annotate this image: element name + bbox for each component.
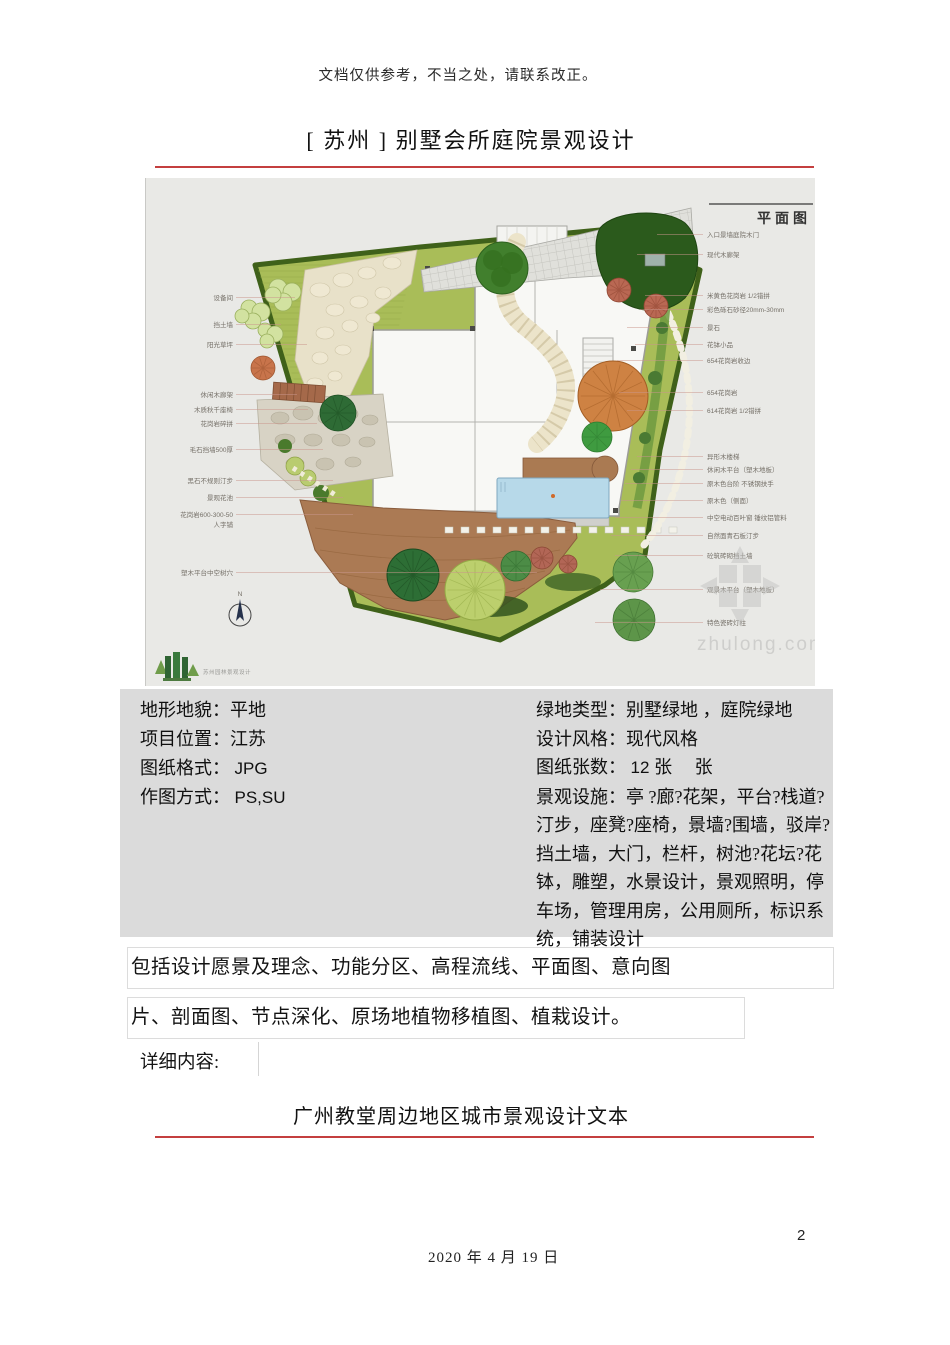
stone-paving xyxy=(257,382,393,490)
watermark-text: zhulong.com xyxy=(697,634,815,655)
info-row: 绿地类型：别墅绿地 ，庭院绿地 xyxy=(536,696,836,725)
info-row: 图纸格式： JPG xyxy=(140,754,286,783)
summary-line-1: 包括设计愿景及理念、功能分区、高程流线、平面图、意向图 xyxy=(127,947,834,989)
pergola xyxy=(273,382,326,403)
plan-title: 平面图 xyxy=(757,211,811,227)
info-row: 图纸张数： 12 张 张 xyxy=(536,753,836,783)
info-row: 设计风格：现代风格 xyxy=(536,725,836,754)
plan-annotation: 614花岗岩 1/2错拼 xyxy=(707,406,762,415)
plan-annotation: 中空电动百叶窗 锤纹铝管料 xyxy=(707,513,787,522)
site-plan-image: 设备间挡土墙阳光草坪休闲木廊架木质秋千座椅花岗岩碎拼毛石挡墙500厚黑石不规则汀… xyxy=(145,178,815,686)
info-row: 作图方式： PS,SU xyxy=(140,783,286,812)
plan-annotation: 异形木楼梯 xyxy=(707,452,740,461)
info-column-left: 地形地貌：平地 项目位置：江苏 图纸格式： JPG 作图方式： PS,SU xyxy=(140,696,286,812)
plan-annotation: 塑木平台中空树穴 xyxy=(181,568,234,577)
plan-annotation: 原木色台阶 不锈钢扶手 xyxy=(707,479,774,488)
info-row: 地形地貌：平地 xyxy=(140,696,286,725)
plan-annotation: 654花岗岩 xyxy=(707,388,738,397)
plan-annotation: 654花岗岩收边 xyxy=(707,356,751,365)
summary-line-2: 片、剖面图、节点深化、原场地植物移植图、植栽设计。 xyxy=(127,997,745,1039)
plan-annotation: 景石 xyxy=(707,324,721,332)
plan-annotation: 入口景墙庭院木门 xyxy=(707,230,759,239)
plan-annotation: 木质秋千座椅 xyxy=(194,405,234,414)
footer-date: 2020 年 4 月 19 日 xyxy=(428,1246,559,1267)
logo-text: 苏州园林景观设计 xyxy=(203,668,251,676)
plan-annotation: 人字铺 xyxy=(214,520,234,529)
project-info-box: 地形地貌：平地 项目位置：江苏 图纸格式： JPG 作图方式： PS,SU 绿地… xyxy=(120,689,833,937)
plan-annotation: 设备间 xyxy=(214,293,234,302)
plan-annotation: 景观花池 xyxy=(207,493,234,502)
plan-annotation: 米黄色花岗岩 1/2错拼 xyxy=(707,291,770,300)
plan-annotation: 毛石挡墙500厚 xyxy=(190,445,234,454)
page-number: 2 xyxy=(797,1227,805,1244)
plan-annotation: 休闲木平台（塑木地板） xyxy=(707,465,779,474)
plan-annotation: 原木色（侧面） xyxy=(707,496,753,505)
north-label: N xyxy=(238,591,243,598)
tree-canopy-lines xyxy=(502,552,530,580)
tree-canopy-lines xyxy=(389,551,437,599)
site-plan-svg: 设备间挡土墙阳光草坪休闲木廊架木质秋千座椅花岗岩碎拼毛石挡墙500厚黑石不规则汀… xyxy=(145,178,815,686)
info-row: 项目位置：江苏 xyxy=(140,725,286,754)
plan-annotation: 花岗岩碎拼 xyxy=(201,419,234,428)
disclaimer-text: 文档仅供参考，不当之处，请联系改正。 xyxy=(0,64,916,85)
tree-canopy-lines xyxy=(447,562,502,617)
plan-annotation: 彩色砾石砂径20mm-30mm xyxy=(707,305,784,314)
plan-annotation: 现代木廊架 xyxy=(707,250,740,259)
title-underline xyxy=(155,166,814,168)
title-underline xyxy=(155,1136,814,1138)
swimming-pool xyxy=(497,478,609,518)
plan-annotation: 挡土墙 xyxy=(214,320,234,329)
plan-annotation: 阳光草坪 xyxy=(207,340,234,349)
info-row-facilities: 景观设施：亭 ?廊?花架，平台?栈道?汀步，座凳?座椅，景墙?围墙，驳岸?挡土墙… xyxy=(536,783,836,954)
next-section-title: 广州教堂周边地区城市景观设计文本 xyxy=(0,1100,922,1129)
plan-annotation: 休闲木廊架 xyxy=(201,390,234,399)
info-column-right: 绿地类型：别墅绿地 ，庭院绿地 设计风格：现代风格 图纸张数： 12 张 张 景… xyxy=(536,696,836,954)
plan-annotation: 自然面青石板汀步 xyxy=(707,531,760,540)
plan-annotation: 花钵小品 xyxy=(707,340,733,349)
page-title: [ 苏州 ] 别墅会所庭院景观设计 xyxy=(0,123,942,155)
plan-annotation: 花岗岩600-300-50 xyxy=(180,510,233,519)
stepping-stones-row xyxy=(445,527,677,533)
table-cell-divider xyxy=(258,1042,259,1076)
tree-canopy-lines xyxy=(560,556,577,573)
detail-content-label: 详细内容: xyxy=(140,1048,219,1074)
plan-annotation: 黑石不规则汀步 xyxy=(188,476,234,485)
tree-canopy-lines xyxy=(583,423,611,451)
